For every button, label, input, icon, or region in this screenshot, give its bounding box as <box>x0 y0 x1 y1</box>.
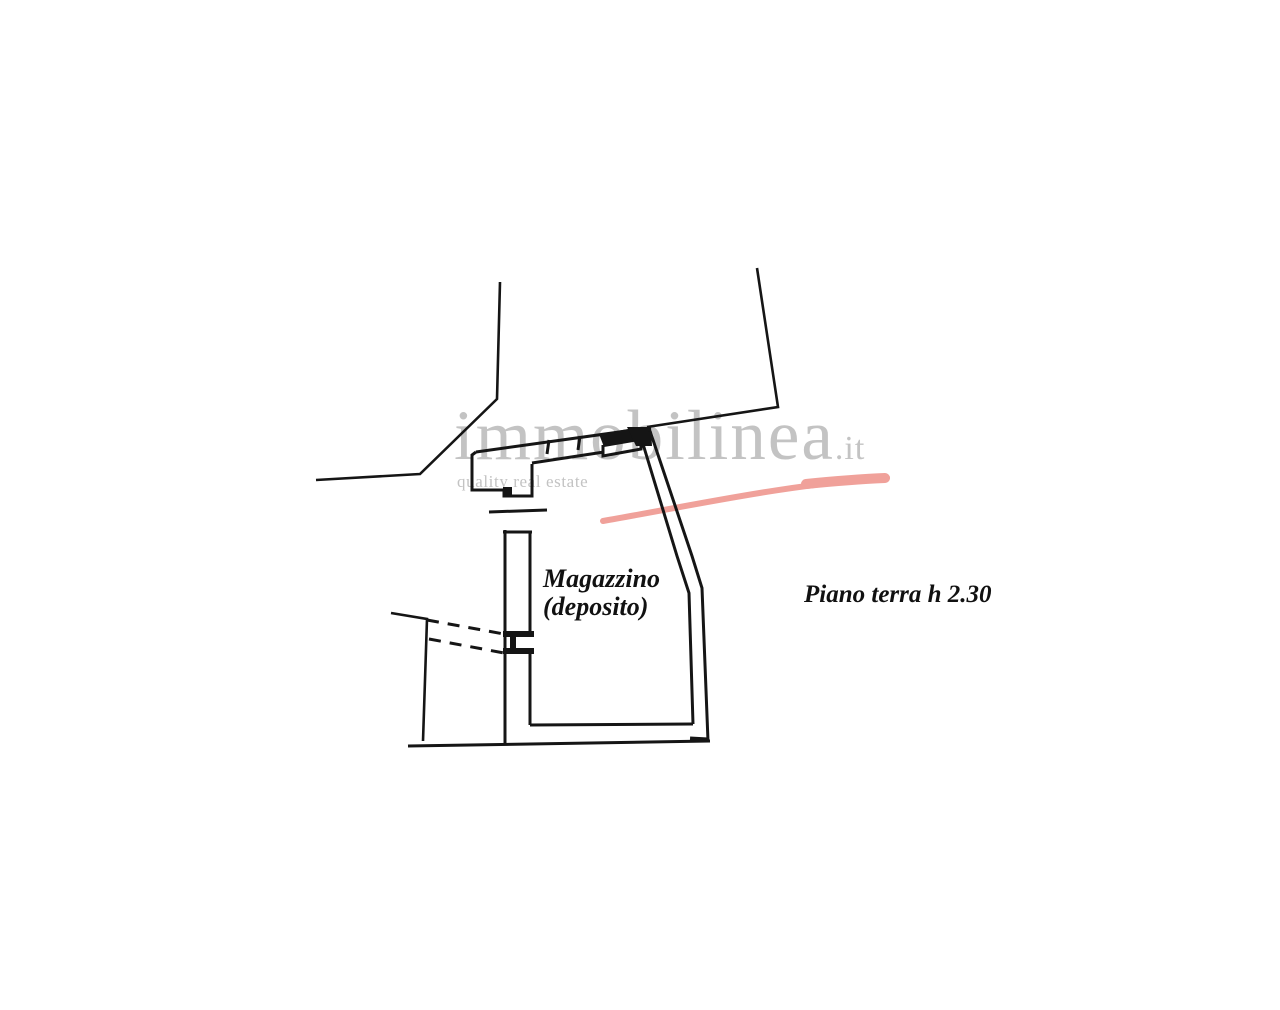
boundary-line-upper-left <box>316 282 500 480</box>
room-qualifier: (deposito) <box>543 593 660 621</box>
bottom-right-corner-thickening <box>690 739 708 740</box>
entrance-step-line <box>489 510 547 512</box>
boundary-line-upper-right <box>647 268 778 427</box>
window-sill-bottom <box>503 648 534 654</box>
room-label: Magazzino (deposito) <box>543 565 660 621</box>
annex-walls <box>472 452 532 497</box>
annex-step-notch <box>503 487 512 497</box>
left-wall <box>503 530 534 744</box>
boundary-line-lower-left <box>391 613 427 741</box>
dashed-line-lower <box>429 639 504 653</box>
window-divider-1 <box>547 440 549 454</box>
room-name: Magazzino <box>543 565 660 593</box>
bottom-wall-outer-line <box>408 741 710 746</box>
top-wall-band <box>476 427 652 463</box>
window-divider-2 <box>578 436 580 450</box>
floor-plan-drawing <box>0 0 1280 1010</box>
site-boundary-lines <box>316 268 778 741</box>
floor-plan-page: immobilinea.it quality real estate <box>0 0 1280 1010</box>
annex-outline <box>472 452 532 496</box>
window-sill-top <box>503 631 534 637</box>
bottom-wall-inner-line <box>530 724 693 725</box>
dashed-line-upper <box>427 620 504 634</box>
window-frame-mid <box>510 633 516 651</box>
top-wall-inner-line <box>532 452 604 463</box>
floor-note: Piano terra h 2.30 <box>804 581 992 609</box>
bottom-wall <box>408 724 710 746</box>
dashed-projection-lines <box>427 620 504 653</box>
